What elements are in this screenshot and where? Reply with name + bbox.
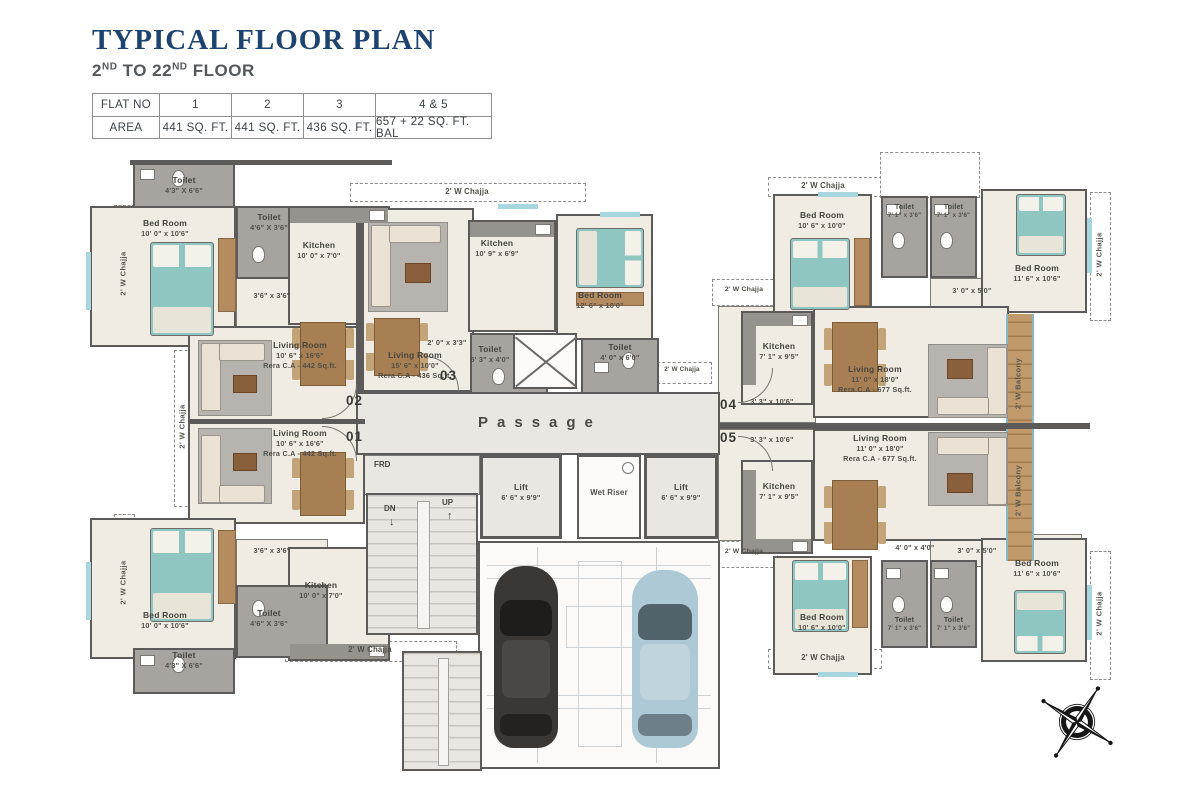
label-balcony-top: 2' W Balcony <box>1014 334 1023 434</box>
label-passage: Passage <box>478 414 602 431</box>
label-flat1-living: Living Room10' 6" x 16'6"Rera C.A - 442 … <box>240 428 360 459</box>
sink-flat5-b <box>934 568 949 579</box>
up-arrow-icon: ↑ <box>447 510 453 522</box>
label-flat1-hall: 3'6" x 3'6" <box>232 546 312 556</box>
label-flat5-entry: 3' 3" x 10'6" <box>732 435 812 445</box>
car-blue <box>632 570 698 748</box>
label-balcony-bottom: 2' W Balcony <box>1014 441 1023 541</box>
label-chajja-right-bottom: 2' W Chajja <box>1095 564 1104 664</box>
label-flat5-toilet-a: Toilet7' 1" x 3'6" <box>882 616 927 634</box>
table-flat-45: 4 & 5 <box>375 94 491 116</box>
dining-table-flat5 <box>832 480 878 550</box>
staircase-main <box>366 493 478 635</box>
label-up: UP <box>442 498 453 507</box>
label-flat3-toilet-b: Toilet4' 0" x 6'0" <box>590 342 650 363</box>
label-chajja-flat4-top: 2' W Chajja <box>763 181 883 192</box>
flat-marker-05: 05 <box>720 430 737 445</box>
label-flat3-bed: Bed Room12' 6" x 10'0" <box>540 290 660 311</box>
label-flat2-toilet-corner: Toilet4'3" X 6'6" <box>144 175 224 196</box>
table-area-45: 657 + 22 SQ. FT. BAL <box>375 116 491 138</box>
bed-flat3 <box>576 228 644 288</box>
label-flat3-toilet-a: Toilet5' 3" x 4'0" <box>460 344 520 365</box>
wc-flat5-a <box>892 596 905 613</box>
label-flat4-hall: 3' 0" x 5'0" <box>932 286 1012 296</box>
label-chajja-left-top: 2' W Chajja <box>119 224 128 324</box>
sink-flat3-b <box>594 362 609 373</box>
wc-flat5-b <box>940 596 953 613</box>
floor-plan-page: TYPICAL FLOOR PLAN 2ND TO 22ND FLOOR FLA… <box>0 0 1200 800</box>
table-area-2: 441 SQ. FT. <box>231 116 303 138</box>
flat-marker-04: 04 <box>720 397 737 412</box>
label-flat1-kitchen: Kitchen10' 0" x 7'0" <box>280 580 362 601</box>
wc-flat2 <box>252 246 265 263</box>
label-flat4-bed-a: Bed Room10' 6" x 10'0" <box>762 210 882 231</box>
kitchen-counter-flat3 <box>470 222 554 237</box>
label-flat4-entry: 3' 3" x 10'6" <box>732 397 812 407</box>
window-flat2-bed <box>86 252 91 310</box>
bed-flat1 <box>150 528 214 622</box>
wet-riser-valve-icon <box>622 462 634 474</box>
table-area-1: 441 SQ. FT. <box>159 116 231 138</box>
label-chajja-flat4-left: 2' W Chajja <box>712 285 776 294</box>
wardrobe-flat4 <box>854 238 870 306</box>
window-flat4-bed-a <box>818 192 858 197</box>
sofa-set-flat3 <box>368 222 448 312</box>
label-flat2-living: Living Room10' 6" x 16'6"Rera C.A - 442 … <box>240 340 360 371</box>
wardrobe-flat2 <box>218 238 236 312</box>
label-wet-riser: Wet Riser <box>577 488 641 499</box>
label-chajja-left-bottom: 2' W Chajja <box>119 533 128 633</box>
chajja-zone-toilets-top <box>880 152 980 198</box>
wc-flat4-a <box>892 232 905 249</box>
label-flat4-bed-b: Bed Room11' 6" x 10'6" <box>977 263 1097 284</box>
label-flat5-bed-a: Bed Room10' 6" x 10'0" <box>762 612 882 633</box>
compass-icon <box>1035 680 1119 764</box>
flat-marker-03: 03 <box>440 368 457 383</box>
label-flat5-kitchen: Kitchen7' 1" x 9'5" <box>739 481 819 502</box>
label-flat4-toilet-b: Toilet7' 1" x 3'6" <box>931 203 976 221</box>
label-flat2-kitchen: Kitchen10' 0" x 7'0" <box>278 240 360 261</box>
table-flat-2: 2 <box>231 94 303 116</box>
car-dark <box>494 566 558 748</box>
label-chajja-right-top: 2' W Chajja <box>1095 205 1104 305</box>
wc-flat4-b <box>940 232 953 249</box>
wc-flat3-a <box>492 368 505 385</box>
table-header-flat-no: FLAT NO <box>93 94 159 116</box>
staircase-lower <box>402 651 482 771</box>
bed-flat5-b <box>1014 590 1066 654</box>
stair-rail <box>417 501 431 630</box>
label-flat2-hall: 3'6" x 3'6" <box>232 291 312 301</box>
label-frd: FRD <box>374 460 390 469</box>
label-chajja-top-center: 2' W Chajja <box>407 187 527 198</box>
table-flat-3: 3 <box>303 94 375 116</box>
label-dn: DN <box>384 504 396 513</box>
down-arrow-icon: ↓ <box>389 516 395 528</box>
wall-top-left-wing <box>130 160 392 165</box>
page-title: TYPICAL FLOOR PLAN <box>92 24 435 57</box>
label-flat1-toilet: Toilet4'6" X 3'6" <box>238 608 300 629</box>
label-flat1-toilet-corner: Toilet4'3" X 6'6" <box>144 650 224 671</box>
label-flat5-living: Living Room11' 0" x 18'0"Rera C.A - 677 … <box>810 433 950 464</box>
table-flat-1: 1 <box>159 94 231 116</box>
window-flat5-bed <box>1087 585 1092 640</box>
sink-flat5-a <box>886 568 901 579</box>
label-flat2-toilet: Toilet4'6" X 3'6" <box>238 212 300 233</box>
label-chajja-flat3-right: 2' W Chajja <box>653 366 711 375</box>
label-flat4-living: Living Room11' 0" x 18'0"Rera C.A - 677 … <box>805 364 945 395</box>
duct-shaft <box>513 333 577 389</box>
label-chajja-left-mid: 2' W Chajja <box>178 377 187 477</box>
label-flat4-toilet-a: Toilet7' 1" x 3'6" <box>882 203 927 221</box>
table-header-area: AREA <box>93 116 159 138</box>
bed-flat4-b <box>1016 194 1066 256</box>
flat-marker-01: 01 <box>346 429 363 444</box>
wall-living-divider <box>188 419 365 424</box>
table-area-3: 436 SQ. FT. <box>303 116 375 138</box>
label-flat5-bed-b: Bed Room11' 6" x 10'6" <box>977 558 1097 579</box>
area-table: FLAT NO 1 2 3 4 & 5 AREA 441 SQ. FT. 441… <box>92 93 492 139</box>
stair-rail-lower <box>438 658 448 767</box>
bed-flat4-a <box>790 238 850 310</box>
window-flat1-bed <box>86 562 91 620</box>
label-flat4-kitchen: Kitchen7' 1" x 9'5" <box>739 341 819 362</box>
label-lift-b: Lift6' 6" x 9'9" <box>642 482 720 503</box>
window-flat3-bed <box>600 212 640 217</box>
label-lift-a: Lift6' 6" x 9'9" <box>481 482 561 503</box>
label-chajja-flat5-left: 2' W Chajja <box>712 547 776 556</box>
label-flat5-hall-b: 3' 0" x 5'0" <box>937 546 1017 556</box>
window-flat5-bed-a <box>818 672 858 677</box>
dining-table-flat1 <box>300 452 346 516</box>
bed-flat2 <box>150 242 214 336</box>
wardrobe-flat1 <box>218 530 236 604</box>
label-chajja-flat5-bottom: 2' W Chajja <box>763 653 883 664</box>
window-flat3-kitchen <box>498 204 538 209</box>
label-flat3-kitchen: Kitchen10' 9" x 6'9" <box>457 238 537 259</box>
kitchen-counter-flat2 <box>290 208 388 223</box>
label-flat5-toilet-b: Toilet7' 1" x 3'6" <box>931 616 976 634</box>
floor-range-subtitle: 2ND TO 22ND FLOOR <box>92 61 255 81</box>
wall-flat45-divider <box>720 423 1090 429</box>
label-chajja-flat1-bottom: 2' W Chajja <box>285 645 455 656</box>
flat-marker-02: 02 <box>346 393 363 408</box>
